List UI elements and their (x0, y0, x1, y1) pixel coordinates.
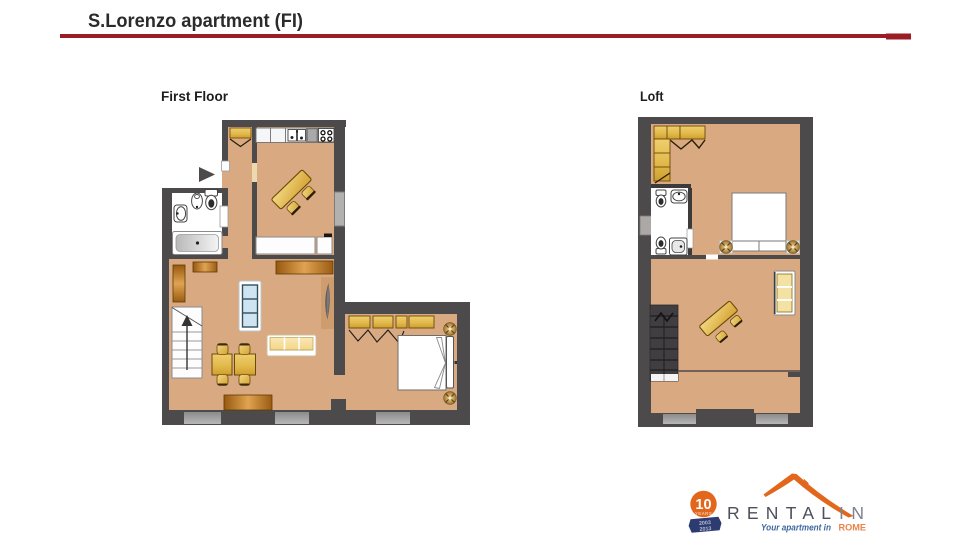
svg-text:YEARS: YEARS (695, 511, 712, 516)
svg-text:ROME: ROME (839, 523, 867, 533)
svg-text:RENTAL: RENTAL (727, 503, 831, 523)
svg-text:IN: IN (839, 503, 864, 523)
svg-text:First Floor: First Floor (161, 89, 229, 104)
svg-text:Your apartment in: Your apartment in (761, 523, 831, 533)
svg-text:S.Lorenzo apartment (FI): S.Lorenzo apartment (FI) (88, 11, 303, 32)
svg-text:Loft: Loft (640, 89, 664, 104)
svg-text:2013: 2013 (699, 526, 711, 533)
